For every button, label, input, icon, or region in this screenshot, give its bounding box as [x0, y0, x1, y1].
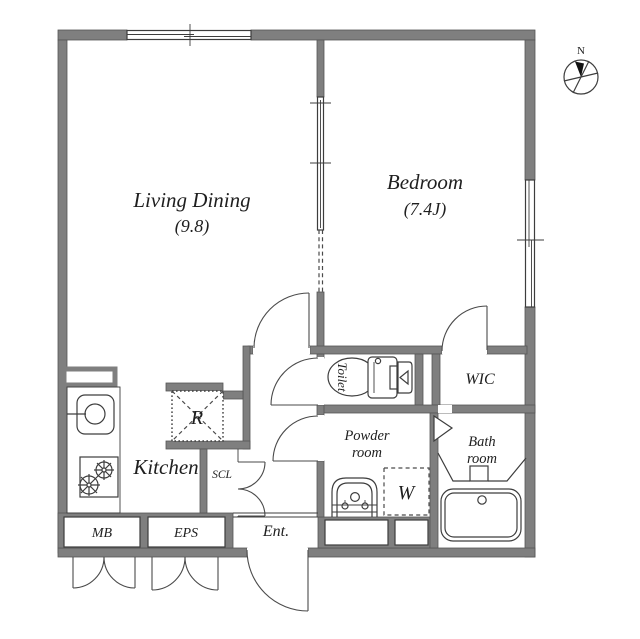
entrance-label: Ent.: [262, 523, 289, 540]
kitchen-fixtures: [64, 369, 120, 513]
floor-plan-page: N Living Dining (9.8) Bedroom (7.4J) Kit…: [0, 0, 640, 639]
powder-room-label-2: room: [352, 445, 382, 461]
window-partition: [310, 97, 331, 230]
eps-doors: [152, 557, 218, 590]
bathtub: [441, 489, 521, 541]
wic-door: [442, 306, 487, 351]
doors: [73, 293, 487, 611]
entrance-door: [247, 550, 308, 611]
service-boxes: [64, 517, 428, 547]
kitchen-stove: [78, 457, 118, 497]
kitchen-hood: [64, 369, 115, 385]
compass: N: [564, 45, 598, 94]
windows: [127, 24, 544, 307]
scl-doors: [238, 449, 265, 517]
kitchen-sink: [67, 395, 114, 434]
bedroom-area: (7.4J): [404, 199, 446, 220]
powder-room-door: [273, 416, 318, 461]
toilet-label: Toilet: [335, 362, 350, 392]
mb-label: MB: [91, 526, 113, 541]
mb-doors: [73, 557, 135, 588]
fridge-label: R: [190, 407, 203, 429]
bath-folding-door: [434, 416, 452, 441]
sliding-opening-bedroom: [319, 230, 323, 292]
wic-label: WIC: [465, 371, 495, 388]
powder-room-label-1: Powder: [343, 428, 389, 444]
bedroom-label: Bedroom: [387, 170, 463, 194]
living-dining-area: (9.8): [175, 216, 210, 237]
kitchen-counter: [67, 387, 120, 513]
toilet-door: [271, 358, 318, 405]
washer-label: W: [398, 482, 417, 504]
living-door: [254, 293, 309, 348]
washer-recess: [395, 520, 428, 545]
kitchen-label: Kitchen: [132, 455, 198, 479]
window-right: [517, 180, 544, 307]
living-dining-label: Living Dining: [132, 188, 250, 212]
washbasin-fixture: [332, 478, 377, 517]
bath-room-label-2: room: [467, 451, 497, 467]
eps-label: EPS: [173, 526, 198, 541]
bath-room-label-1: Bath: [468, 434, 495, 450]
exterior-walls: [58, 30, 535, 557]
under-counter-recess: [325, 520, 388, 545]
window-top: [127, 24, 251, 46]
scl-label: SCL: [212, 469, 232, 481]
compass-north-label: N: [577, 45, 585, 57]
floor-plan-drawing: N Living Dining (9.8) Bedroom (7.4J) Kit…: [0, 0, 640, 639]
